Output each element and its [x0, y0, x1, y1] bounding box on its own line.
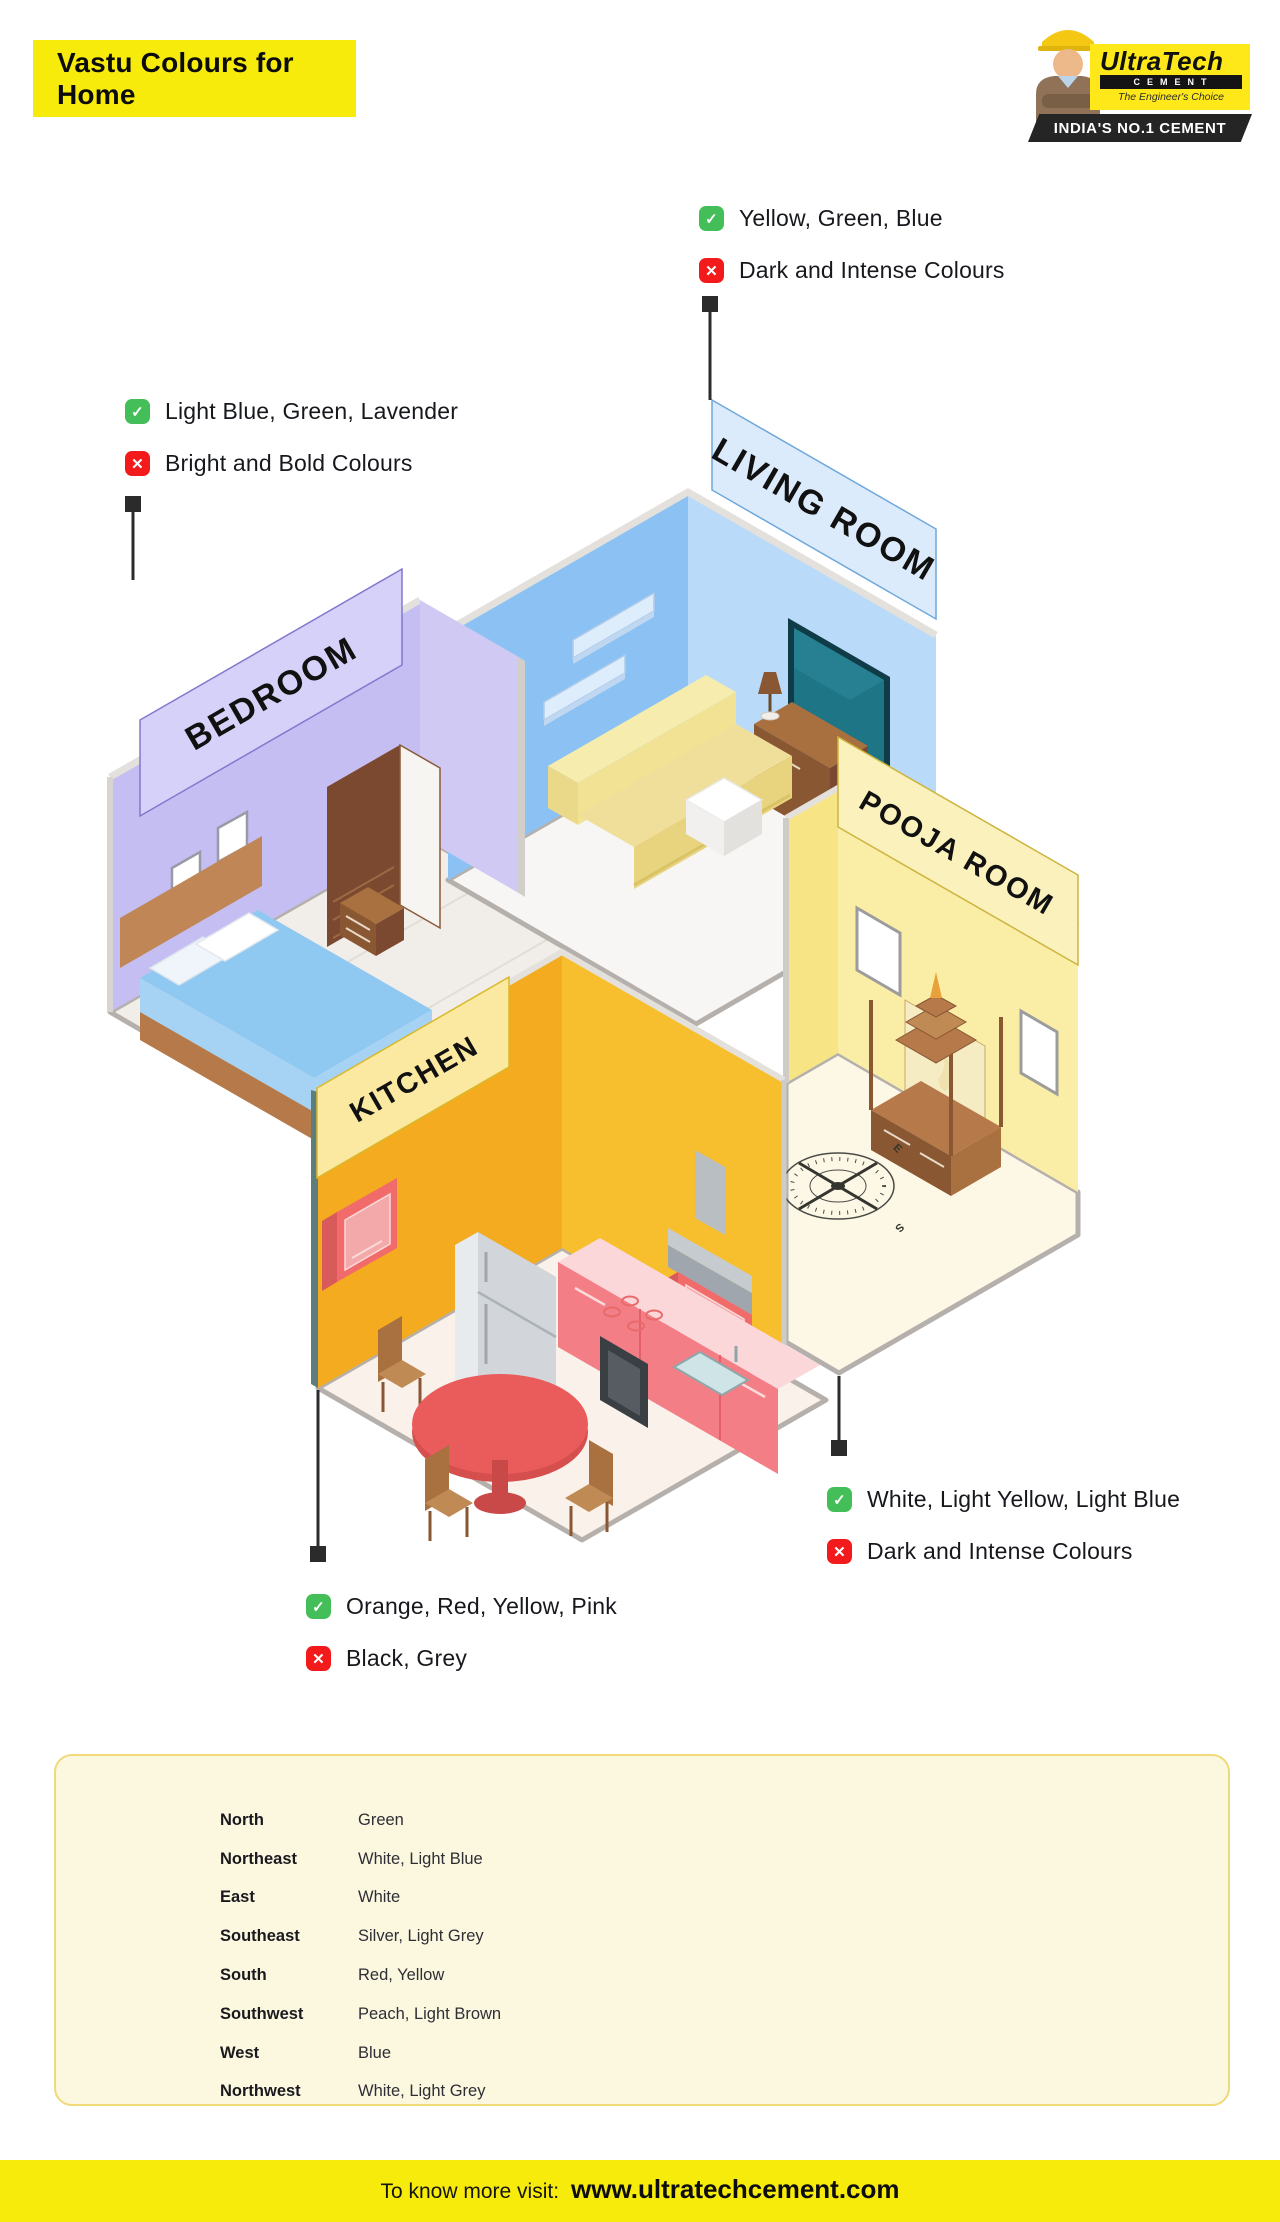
check-glyph: ✓	[312, 1598, 325, 1616]
bedroom-allowed: ✓ Light Blue, Green, Lavender	[125, 398, 458, 425]
footer-url: www.ultratechcement.com	[571, 2174, 899, 2205]
logo-banner-text: INDIA'S NO.1 CEMENT	[1054, 120, 1226, 137]
pooja-room-avoid-text: Dark and Intense Colours	[867, 1538, 1133, 1565]
colours-cell: Blue	[358, 2044, 391, 2063]
cross-glyph: ✕	[312, 1650, 325, 1668]
direction-cell: Southwest	[220, 2005, 358, 2024]
colours-cell: White, Light Blue	[358, 1850, 483, 1869]
living-room-avoid-text: Dark and Intense Colours	[739, 257, 1005, 284]
living-room-avoid: ✕ Dark and Intense Colours	[699, 257, 1005, 284]
page-title: Vastu Colours for Home	[33, 40, 356, 117]
table-row: EastWhite	[220, 1879, 501, 1918]
table-row: SoutheastSilver, Light Grey	[220, 1917, 501, 1956]
table-row: SouthRed, Yellow	[220, 1956, 501, 1995]
table-row: NorthGreen	[220, 1801, 501, 1840]
bedroom-avoid: ✕ Bright and Bold Colours	[125, 450, 413, 477]
colours-cell: Red, Yellow	[358, 1966, 444, 1985]
cross-glyph: ✕	[705, 262, 718, 280]
logo-brand: UltraTech	[1100, 48, 1242, 74]
living-room-allowed: ✓ Yellow, Green, Blue	[699, 205, 943, 232]
cross-icon: ✕	[125, 451, 150, 476]
table-row: NorthwestWhite, Light Grey	[220, 2073, 501, 2112]
pooja-room-allowed-text: White, Light Yellow, Light Blue	[867, 1486, 1180, 1513]
direction-colours-table: NorthGreen NortheastWhite, Light Blue Ea…	[220, 1801, 501, 2111]
table-row: WestBlue	[220, 2034, 501, 2073]
footer-prefix: To know more visit:	[380, 2180, 559, 2204]
check-icon: ✓	[699, 206, 724, 231]
table-row: SouthwestPeach, Light Brown	[220, 1995, 501, 2034]
ultratech-logo: UltraTech CEMENT The Engineer's Choice I…	[1028, 14, 1252, 146]
cross-glyph: ✕	[131, 455, 144, 473]
direction-cell: South	[220, 1966, 358, 1985]
cross-icon: ✕	[699, 258, 724, 283]
logo-box: UltraTech CEMENT The Engineer's Choice	[1090, 44, 1250, 110]
direction-cell: East	[220, 1888, 358, 1907]
table-row: NortheastWhite, Light Blue	[220, 1840, 501, 1879]
cross-icon: ✕	[827, 1539, 852, 1564]
direction-cell: Northeast	[220, 1850, 358, 1869]
pooja-wall-left	[786, 788, 838, 1083]
kitchen-avoid-text: Black, Grey	[346, 1645, 467, 1672]
cross-icon: ✕	[306, 1646, 331, 1671]
cross-glyph: ✕	[833, 1543, 846, 1561]
logo-banner: INDIA'S NO.1 CEMENT	[1028, 114, 1252, 142]
direction-cell: West	[220, 2044, 358, 2063]
check-glyph: ✓	[131, 403, 144, 421]
check-glyph: ✓	[705, 210, 718, 228]
direction-cell: North	[220, 1811, 358, 1830]
colours-cell: White	[358, 1888, 400, 1907]
check-icon: ✓	[125, 399, 150, 424]
bedroom-avoid-text: Bright and Bold Colours	[165, 450, 413, 477]
pooja-room-allowed: ✓ White, Light Yellow, Light Blue	[827, 1486, 1180, 1513]
check-icon: ✓	[306, 1594, 331, 1619]
page-title-text: Vastu Colours for Home	[57, 47, 356, 111]
bedroom-allowed-text: Light Blue, Green, Lavender	[165, 398, 458, 425]
direction-cell: Southeast	[220, 1927, 358, 1946]
colours-cell: Silver, Light Grey	[358, 1927, 484, 1946]
kitchen-allowed-text: Orange, Red, Yellow, Pink	[346, 1593, 617, 1620]
check-glyph: ✓	[833, 1491, 846, 1509]
living-room-allowed-text: Yellow, Green, Blue	[739, 205, 943, 232]
colours-cell: White, Light Grey	[358, 2082, 485, 2101]
logo-word: CEMENT	[1100, 75, 1242, 89]
footer: To know more visit: www.ultratechcement.…	[0, 2160, 1280, 2222]
direction-cell: Northwest	[220, 2082, 358, 2101]
logo-tagline: The Engineer's Choice	[1100, 91, 1242, 103]
pooja-room-avoid: ✕ Dark and Intense Colours	[827, 1538, 1133, 1565]
colours-cell: Peach, Light Brown	[358, 2005, 501, 2024]
kitchen-avoid: ✕ Black, Grey	[306, 1645, 467, 1672]
colours-cell: Green	[358, 1811, 404, 1830]
kitchen-allowed: ✓ Orange, Red, Yellow, Pink	[306, 1593, 617, 1620]
check-icon: ✓	[827, 1487, 852, 1512]
